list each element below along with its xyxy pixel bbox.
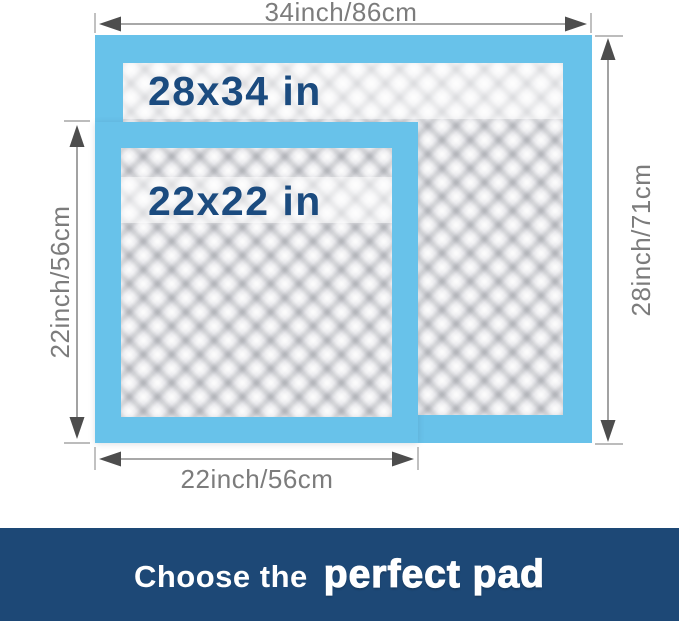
top-width-label: 34inch/86cm	[265, 0, 418, 25]
banner-text: Choose the perfect pad	[134, 553, 545, 597]
banner-text-regular: Choose the	[134, 559, 308, 595]
right-height-arrow-icon	[595, 36, 623, 444]
bottom-width-label: 22inch/56cm	[181, 466, 334, 492]
banner: Choose the perfect pad	[0, 528, 679, 621]
dimension-arrows	[0, 0, 679, 528]
left-height-label: 22inch/56cm	[47, 206, 73, 359]
product-size-diagram: 28x34 in 22x22 in	[0, 0, 679, 528]
banner-text-bold: perfect pad	[324, 553, 545, 597]
right-height-label: 28inch/71cm	[628, 164, 654, 317]
